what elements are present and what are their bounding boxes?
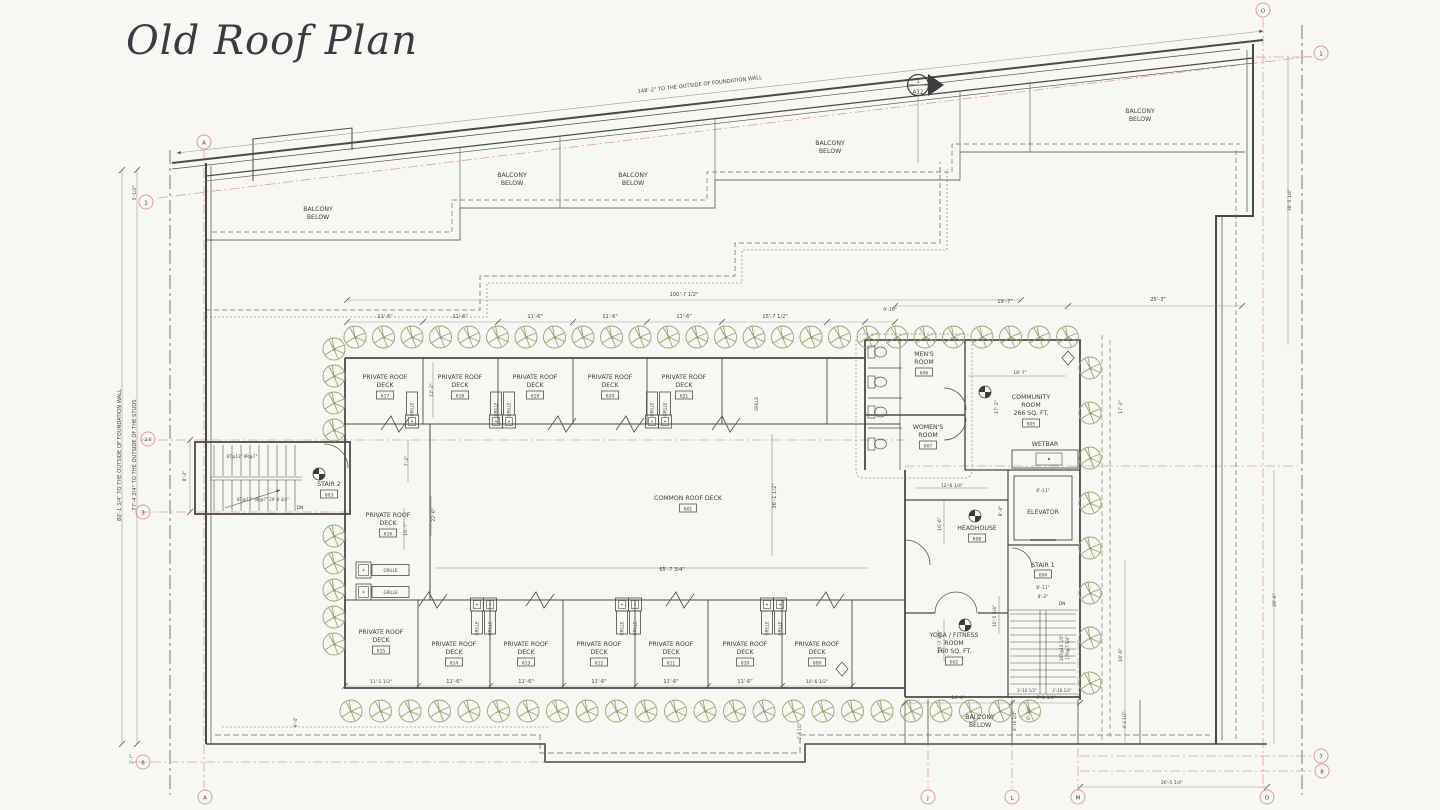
deck-label: DECK xyxy=(517,649,535,656)
room-number: 608 xyxy=(973,536,982,542)
dim-19-7: 19'-7" xyxy=(997,299,1013,305)
dim-2-7: 2'-7" xyxy=(129,754,134,764)
roof-plan-drawing: GRILLE GRILLE GRILLE xyxy=(0,0,1440,810)
deck-number: 611 xyxy=(667,660,676,666)
dim-14-4: 14'-4" xyxy=(951,695,965,701)
grid-bubble-1-right: 1 xyxy=(1314,46,1328,60)
tree-symbol xyxy=(658,326,680,348)
grille-unit xyxy=(406,392,419,428)
grid-bubble-o-top: O xyxy=(1256,3,1270,17)
room-label-stair1: STAIR 1 xyxy=(1031,562,1055,569)
tree-symbol xyxy=(871,700,893,722)
deck-label: DECK xyxy=(590,649,608,656)
tree-symbol xyxy=(399,700,421,722)
tree-symbol xyxy=(323,392,345,414)
grid-bubble-label: 7 xyxy=(1319,754,1323,760)
grid-bubble-label: A xyxy=(203,795,207,801)
deck-label: PRIVATE ROOF xyxy=(588,374,633,381)
room-number: 604 xyxy=(1039,572,1048,578)
room-label: COMMON ROOF DECK xyxy=(654,495,723,502)
deck-number: 614 xyxy=(450,660,459,666)
deck-number: 621 xyxy=(680,393,689,399)
tree-symbol xyxy=(323,579,345,601)
grid-bubble-a-top: A xyxy=(197,135,211,149)
tree-symbol xyxy=(601,326,623,348)
tree-symbol xyxy=(829,326,851,348)
trees-left-lower xyxy=(323,525,345,655)
deck-label: DECK xyxy=(736,649,754,656)
dim-bay: 11'-6" xyxy=(591,679,607,685)
grid-bubble-7-right: 7 xyxy=(1314,749,1328,763)
grid-bubble-label: 8 xyxy=(1320,769,1324,775)
room-label-community: 266 SQ. FT. xyxy=(1014,410,1049,417)
tree-symbol xyxy=(430,326,452,348)
deck-label: PRIVATE ROOF xyxy=(577,641,622,648)
dim-36-1: 36'-1 1/2" xyxy=(772,483,778,509)
grid-bubble-label: 8 xyxy=(141,760,145,766)
grille-unit xyxy=(471,598,484,636)
deck-label: PRIVATE ROOF xyxy=(513,374,558,381)
tree-symbol xyxy=(323,419,345,441)
deck-label: DECK xyxy=(376,382,394,389)
room-label-womens: WOMEN'S xyxy=(913,424,944,431)
dim-2-6: 2'-6 1/2" xyxy=(797,722,802,739)
grid-bubble-1-left: 1 xyxy=(139,195,153,209)
deck-labels-top: PRIVATE ROOFDECK 617 PRIVATE ROOFDECK 61… xyxy=(363,374,707,399)
grid-bubble-a-bottom: A xyxy=(198,790,212,804)
tree-symbol xyxy=(488,700,510,722)
stair2-run-note: 8T@11" 9R@7" 20'-4 3/4" xyxy=(237,497,289,502)
tree-symbol xyxy=(1079,492,1101,514)
grille-unit xyxy=(503,392,516,428)
tree-symbol xyxy=(1057,326,1079,348)
grid-bubble-label: J xyxy=(926,795,929,801)
tree-symbol xyxy=(1079,402,1101,424)
tree-symbol xyxy=(323,552,345,574)
dim-17-2: 17'-2" xyxy=(1118,400,1124,414)
dim-18-6: 18'-6" xyxy=(1118,648,1124,662)
dim-65-7: 65'-7 3/4" xyxy=(659,567,685,573)
grille-wall-label: GRILLE xyxy=(754,397,759,412)
deck-number: 616 xyxy=(384,531,393,537)
dim-9-10: 9'-10" xyxy=(883,307,897,313)
tree-symbol xyxy=(635,700,657,722)
grid-lines xyxy=(133,18,1313,788)
dim-bay-bot-last: 10'-6 1/2" xyxy=(806,679,828,685)
dimension-lines xyxy=(122,31,1288,787)
deck-label: DECK xyxy=(526,382,544,389)
dim-9-1: 9'-1 3/4" xyxy=(1036,695,1055,701)
grid-bubble-label: O xyxy=(1265,795,1270,801)
annotations: 148'-2" TO THE OUTSIDE OF FOUNDATION WAL… xyxy=(117,75,1293,786)
deck-label: PRIVATE ROOF xyxy=(649,641,694,648)
grid-bubble-26-left: 2.6 xyxy=(141,432,155,446)
tree-symbol xyxy=(515,326,537,348)
grid-bubble-8-right: 8 xyxy=(1315,764,1329,778)
grid-bubble-label: 3 xyxy=(141,510,145,516)
room-number: 601 xyxy=(684,506,693,512)
grille-unit xyxy=(356,562,409,578)
grid-bubble-label: O xyxy=(1261,8,1266,14)
dim-bay: 11'-6" xyxy=(518,679,534,685)
balcony-edges xyxy=(206,83,1245,753)
deck-number: 617 xyxy=(381,393,390,399)
tree-symbol xyxy=(1028,326,1050,348)
room-label-stair2: STAIR 2 xyxy=(317,481,341,488)
tree-symbol xyxy=(323,633,345,655)
grille-unit xyxy=(774,598,787,636)
dim-bay-top-last: 15'-7 1/2" xyxy=(762,314,788,320)
balcony-label: BELOW xyxy=(819,148,841,155)
room-number: 607 xyxy=(924,443,933,449)
tree-symbol xyxy=(429,700,451,722)
deck-number: 620 xyxy=(606,393,615,399)
dim-overall-top: 100'-7 1/2" xyxy=(670,292,699,298)
dim-8-10: 8'-10 1/4" xyxy=(1012,711,1017,731)
balcony-label: BALCONY xyxy=(815,140,845,147)
room-number: 603 xyxy=(325,492,334,498)
deck-label: PRIVATE ROOF xyxy=(438,374,483,381)
tree-symbol xyxy=(1079,672,1101,694)
deck-label: DECK xyxy=(379,520,397,527)
deck-number: 613 xyxy=(522,660,531,666)
dim-3-10: 3'-10 1/2" xyxy=(1017,688,1037,693)
tree-symbol xyxy=(1079,627,1101,649)
tree-symbol xyxy=(857,326,879,348)
deck-label: PRIVATE ROOF xyxy=(504,641,549,648)
grid-bubble-o-bottom: O xyxy=(1260,790,1274,804)
dim-16-6: 16'-6" xyxy=(937,517,943,531)
exterior-walls xyxy=(172,40,1267,762)
dim-bay: 11'-6" xyxy=(676,314,692,320)
dim-bay: 11'-6" xyxy=(737,679,753,685)
balcony-label: BALCONY xyxy=(1125,108,1155,115)
tree-symbol xyxy=(323,525,345,547)
dim-25-3: 25'-3" xyxy=(1150,297,1166,303)
grid-bubble-label: 2.6 xyxy=(144,437,151,443)
room-label-headhouse: HEADHOUSE xyxy=(957,525,997,532)
tree-symbol xyxy=(344,326,366,348)
tree-symbol xyxy=(1079,537,1101,559)
room-label-yoga: YOGA / FITNESS xyxy=(929,632,979,639)
deck-label: DECK xyxy=(601,382,619,389)
stair1-run-note: 17R@7 1/4" xyxy=(1065,636,1070,660)
dim-9-4: 9'-4" xyxy=(293,717,299,728)
dim-18-7: 18'-7" xyxy=(403,522,409,536)
tree-symbol xyxy=(323,606,345,628)
dim-38-5: 38'-5 1/4" xyxy=(1287,189,1293,211)
deck-label: PRIVATE ROOF xyxy=(363,374,408,381)
dim-bay: 11'-6" xyxy=(452,314,468,320)
balcony-label: BALCONY xyxy=(303,206,333,213)
room-label-womens: ROOM xyxy=(918,432,937,439)
room-label-community: COMMUNITY xyxy=(1012,394,1051,401)
balcony-label: BELOW xyxy=(969,722,991,729)
balcony-label: BELOW xyxy=(622,180,644,187)
tree-symbol xyxy=(572,326,594,348)
dim-3-10: 3'-10 1/2" xyxy=(1052,688,1072,693)
deck-number: 612 xyxy=(595,660,604,666)
tree-symbol xyxy=(544,326,566,348)
balcony-label: BALCONY xyxy=(965,714,995,721)
balcony-label: BELOW xyxy=(1129,116,1151,123)
dim-bay: 11'-6" xyxy=(602,314,618,320)
roof-plan-sheet: Old Roof Plan GRILLE xyxy=(0,0,1440,810)
tree-symbol xyxy=(1079,357,1101,379)
grille-unit xyxy=(659,392,672,428)
grid-bubbles: A 1 2.6 3 8 A O 1 7 8 O J L M xyxy=(136,3,1329,804)
tree-symbol xyxy=(458,700,480,722)
tree-symbol xyxy=(373,326,395,348)
tree-symbol xyxy=(886,326,908,348)
dim-5-half: 5'-1/2" xyxy=(132,185,138,200)
workpoint-targets xyxy=(313,386,991,631)
dim-6-11: 6'-11" xyxy=(1036,488,1050,494)
tree-symbol xyxy=(547,700,569,722)
grille-units: GRILLE xyxy=(356,392,787,636)
balcony-label: BELOW xyxy=(307,214,329,221)
dim-8-4: 8'-4" xyxy=(998,506,1004,517)
tree-symbol xyxy=(943,326,965,348)
trees-top-row xyxy=(344,326,1079,348)
deck-label: DECK xyxy=(675,382,693,389)
deck-label: PRIVATE ROOF xyxy=(723,641,768,648)
tree-symbol xyxy=(629,326,651,348)
grille-unit xyxy=(616,598,629,636)
tree-symbol xyxy=(1079,582,1101,604)
dim-10-5: 10'-5 3/4" xyxy=(992,605,998,627)
grid-bubble-label: 1 xyxy=(144,200,148,206)
dim-26-5: 26'-5 1/4" xyxy=(1161,780,1183,786)
room-number: 605 xyxy=(1027,421,1036,427)
tree-symbol xyxy=(800,326,822,348)
section-sheet: A12 xyxy=(913,90,924,96)
grid-bubble-label: M xyxy=(1076,795,1081,801)
trees-right-column xyxy=(1079,357,1101,694)
tree-symbol xyxy=(715,326,737,348)
room-label-yoga: ROOM xyxy=(944,640,963,647)
dim-6-34: 6'-3/4" xyxy=(1026,706,1031,720)
room-label-elevator: ELEVATOR xyxy=(1027,509,1060,516)
grid-bubble-label: A xyxy=(202,140,206,146)
room-label-mens: ROOM xyxy=(914,359,933,366)
tree-symbol xyxy=(753,700,775,722)
dim-22-6: 22'-6" xyxy=(431,508,437,522)
grille-unit xyxy=(490,392,503,428)
deck-number: 610 xyxy=(741,660,750,666)
dim-8-2: 8'-2" xyxy=(1038,594,1049,600)
dim-bay-bot-first: 11'-1 1/2" xyxy=(370,679,392,685)
deck-label: DECK xyxy=(808,649,826,656)
room-label-community: ROOM xyxy=(1021,402,1040,409)
room-label-wetbar: WETBAR xyxy=(1032,441,1059,448)
dim-bay: 11'-6" xyxy=(527,314,543,320)
deck-label: PRIVATE ROOF xyxy=(662,374,707,381)
deck-label: DECK xyxy=(451,382,469,389)
stair2-dn: DN xyxy=(297,505,304,511)
deck-label: DECK xyxy=(372,637,390,644)
grid-bubble-label: L xyxy=(1010,795,1014,801)
grille-unit xyxy=(761,598,774,636)
wetbar-counter xyxy=(1012,450,1078,468)
tree-symbol xyxy=(487,326,509,348)
grille-unit xyxy=(356,584,409,600)
dim-bay: 11'-6" xyxy=(663,679,679,685)
room-number: 606 xyxy=(920,370,929,376)
balcony-label: BELOW xyxy=(501,180,523,187)
dim-left-foundation: 80'-1 3/4" TO THE OUTSIDE OF FOUNDATION … xyxy=(117,389,123,521)
stair2-run-note: 8T@11" 9R@7" xyxy=(227,454,258,459)
grid-bubble-j: J xyxy=(921,790,935,804)
tree-symbol xyxy=(517,700,539,722)
dim-left-studs: 77'-4 3/4" TO THE OUTSIDE OF THE STUDS xyxy=(132,399,138,510)
tree-symbol xyxy=(812,700,834,722)
deck-label: DECK xyxy=(445,649,463,656)
deck-label: PRIVATE ROOF xyxy=(432,641,477,648)
trees-left-upper xyxy=(323,338,345,441)
dim-4-2: 4'-2 1/2" xyxy=(1122,711,1127,728)
dim-12-2: 12'-2" xyxy=(429,383,435,397)
tree-symbol xyxy=(370,700,392,722)
dim-12-6: 12'-6 1/4" xyxy=(941,483,963,489)
tree-symbol xyxy=(340,700,362,722)
balcony-label: BALCONY xyxy=(618,172,648,179)
tree-symbol xyxy=(772,326,794,348)
deck-label: DECK xyxy=(662,649,680,656)
balcony-below-labels: BALCONYBELOW BALCONYBELOW BALCONYBELOW B… xyxy=(303,108,1155,729)
grid-bubble-m: M xyxy=(1071,790,1085,804)
elevator-cab xyxy=(1014,476,1072,540)
deck-number: 615 xyxy=(377,648,386,654)
tree-symbol xyxy=(1000,326,1022,348)
balcony-label: BALCONY xyxy=(497,172,527,179)
tree-symbol xyxy=(401,326,423,348)
common-deck-label: COMMON ROOF DECK 601 xyxy=(654,495,723,512)
tree-symbol xyxy=(783,700,805,722)
property-lines xyxy=(170,25,1302,795)
tree-symbol xyxy=(576,700,598,722)
deck-label: PRIVATE ROOF xyxy=(366,512,411,519)
grid-bubble-l: L xyxy=(1005,790,1019,804)
dim-8-2-left: 8'-2" xyxy=(182,471,188,482)
tree-symbol xyxy=(323,365,345,387)
deck-number: 618 xyxy=(456,393,465,399)
room-labels: MEN'SROOM 606 WOMEN'SROOM 607 COMMUNITYR… xyxy=(227,351,1066,665)
dimension-ticks xyxy=(119,167,1270,790)
stair1-run-note: 16T@10 1/2" xyxy=(1059,635,1064,661)
deck-label: PRIVATE ROOF xyxy=(359,629,404,636)
tree-symbol xyxy=(743,326,765,348)
dim-14-7: 14'-7 3/4" xyxy=(937,630,943,652)
dim-28-6: 28'-6" xyxy=(1272,593,1278,607)
dim-7-2: 7'-2" xyxy=(404,456,410,467)
deck-number: 619 xyxy=(531,393,540,399)
tree-symbol xyxy=(458,326,480,348)
tree-symbol xyxy=(665,700,687,722)
dim-bay: 11'-6" xyxy=(446,679,462,685)
tree-symbol xyxy=(724,700,746,722)
deck-label: PRIVATE ROOF xyxy=(795,641,840,648)
dim-18-7: 18'-7" xyxy=(1013,370,1027,376)
room-label-mens: MEN'S xyxy=(914,351,934,358)
gate-zigzags xyxy=(381,416,844,608)
tree-symbol xyxy=(842,700,864,722)
room-number: 602 xyxy=(950,659,959,665)
dim-foundation-wall: 148'-2" TO THE OUTSIDE OF FOUNDATION WAL… xyxy=(637,75,762,95)
tree-symbol xyxy=(914,326,936,348)
section-number: 1 xyxy=(916,79,920,85)
tree-symbol xyxy=(606,700,628,722)
tree-symbol xyxy=(694,700,716,722)
tree-symbol xyxy=(686,326,708,348)
tree-symbol xyxy=(323,338,345,360)
grid-bubble-label: 1 xyxy=(1319,51,1323,57)
deck-number: 609 xyxy=(813,660,822,666)
dim-17-2: 17'-2" xyxy=(994,400,1000,414)
dim-bay: 11'-6" xyxy=(377,314,393,320)
dim-8-11: 8'-11" xyxy=(1036,585,1050,591)
tree-symbol xyxy=(971,326,993,348)
stair1-dn: DN xyxy=(1059,601,1066,607)
misc-dims: 17'-2" 17'-2" 18'-7" 12'-6 1/4" 16'-6" 8… xyxy=(129,189,1293,786)
